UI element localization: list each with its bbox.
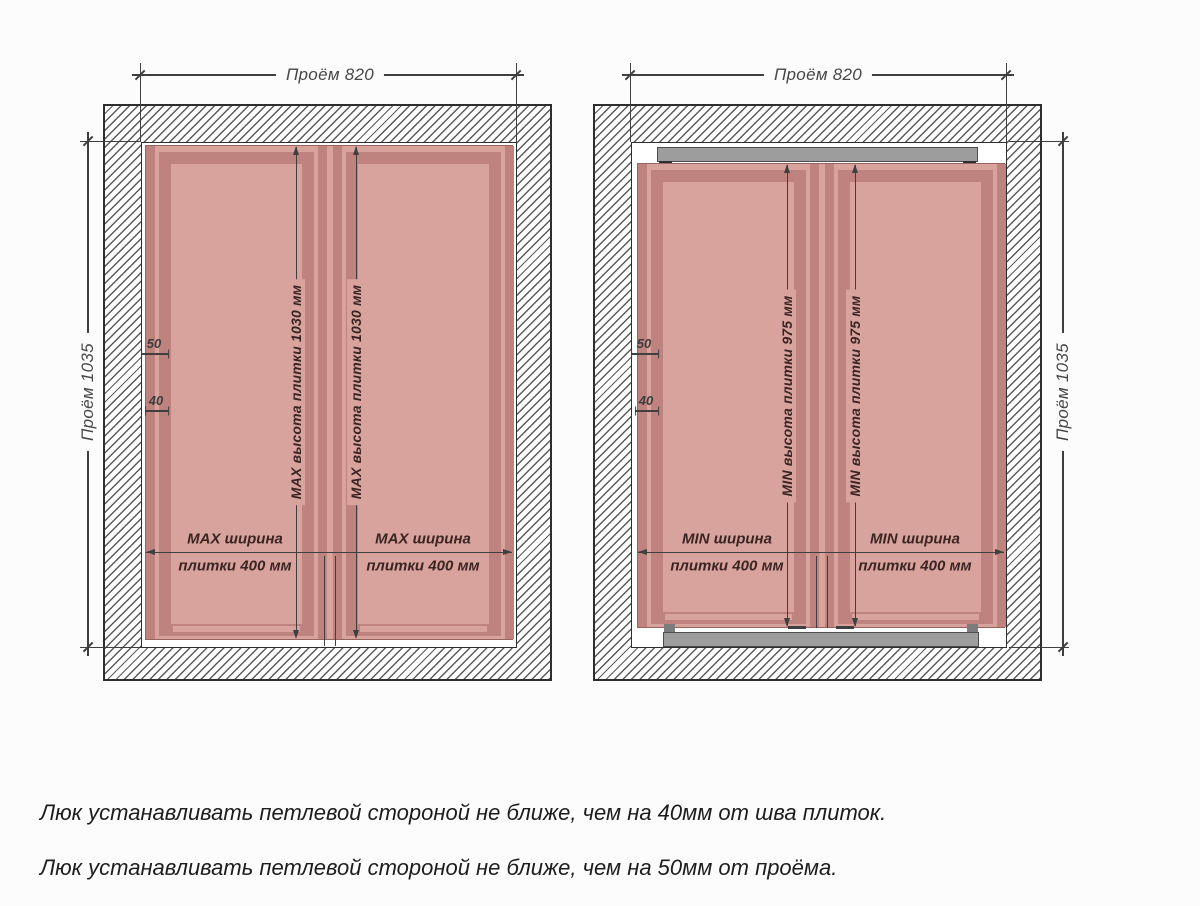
leaf-bottom-strip (360, 626, 487, 632)
installation-note-1: Люк устанавливать петлевой стороной не б… (40, 800, 886, 826)
seam-offset-label: 40 (631, 393, 661, 408)
seam-extension-line (335, 556, 337, 646)
hatch-frame-top-bar (657, 147, 978, 162)
opening-height-label: Проём 1035 (78, 333, 98, 451)
opening-width-label: Проём 820 (764, 65, 872, 85)
dimension-arrow (784, 618, 790, 627)
hatch-frame-bottom-bar (663, 632, 979, 647)
tile-width-label-line2: плитки 400 мм (178, 559, 291, 575)
tile-width-label-line1: MIN ширина (670, 532, 783, 548)
hinge-offset-dimension-line (631, 353, 659, 355)
opening-width-label: Проём 820 (276, 65, 384, 85)
leaf-bottom-strip (665, 614, 792, 620)
tile-height-label: MIN высота плитки 975 мм (846, 290, 864, 503)
leaf-edge-strip (997, 164, 1006, 627)
dimension-arrow (293, 630, 299, 639)
dimension-arrow (852, 618, 858, 627)
tile-width-label: MIN ширина плитки 400 мм (670, 532, 783, 575)
tile-width-label-line2: плитки 400 мм (366, 559, 479, 575)
dimension-arrow (353, 630, 359, 639)
tile-width-label: MAX ширина плитки 400 мм (178, 532, 291, 575)
dimension-arrow (995, 549, 1004, 555)
leaf-bottom-strip (852, 614, 979, 620)
seam-extension-line (816, 556, 818, 628)
seam-extension-line (324, 556, 326, 646)
drawing-canvas: Проём 820 Проём 1035 MAX высота плитки 1… (0, 0, 1200, 906)
dimension-arrow (293, 146, 299, 155)
hinge-offset-label: 50 (138, 336, 170, 351)
leaf-edge-strip (318, 146, 327, 639)
tile-height-label: MAX высота плитки 1030 мм (347, 279, 365, 505)
tile-height-label: MAX высота плитки 1030 мм (287, 279, 305, 505)
frame-corner-block (664, 624, 675, 632)
tile-width-label-line2: плитки 400 мм (670, 559, 783, 575)
seam-extension-line (827, 556, 829, 628)
tile-width-label-line1: MIN ширина (858, 532, 971, 548)
dimension-arrow (638, 549, 647, 555)
leaf-edge-strip (810, 164, 819, 627)
seam-offset-dimension-line (635, 410, 659, 412)
tile-width-label-line2: плитки 400 мм (858, 559, 971, 575)
tile-height-label: MIN высота плитки 975 мм (778, 290, 796, 503)
tile-width-label: MAX ширина плитки 400 мм (366, 532, 479, 575)
hinge-offset-label: 50 (628, 336, 660, 351)
dimension-arrow (353, 146, 359, 155)
leaf-bottom-strip (173, 626, 300, 632)
tile-width-label: MIN ширина плитки 400 мм (858, 532, 971, 575)
dimension-arrow (146, 549, 155, 555)
tile-width-label-line1: MAX ширина (366, 532, 479, 548)
dimension-arrow (784, 164, 790, 173)
opening-height-label: Проём 1035 (1053, 333, 1073, 451)
dimension-arrow (852, 164, 858, 173)
dimension-arrow (503, 549, 512, 555)
hinge-offset-dimension-line (141, 353, 169, 355)
leaf-edge-strip (505, 146, 514, 639)
seam-offset-label: 40 (141, 393, 171, 408)
installation-note-2: Люк устанавливать петлевой стороной не б… (40, 855, 837, 881)
seam-offset-dimension-line (145, 410, 169, 412)
tile-width-label-line1: MAX ширина (178, 532, 291, 548)
frame-corner-block (967, 624, 978, 632)
latch-mark (788, 626, 806, 629)
